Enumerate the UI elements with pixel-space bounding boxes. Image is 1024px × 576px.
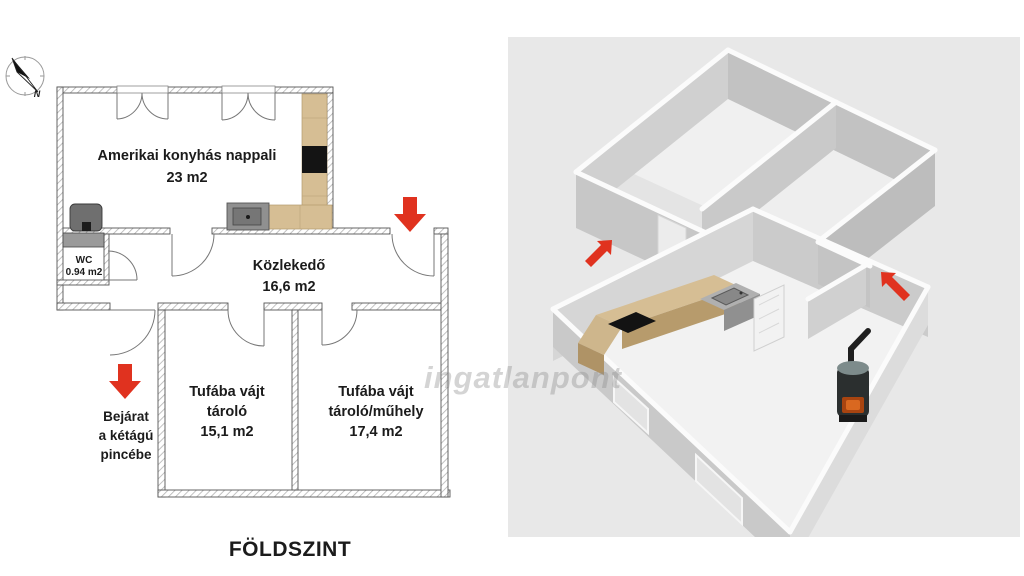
living-room-label: Amerikai konyhás nappali bbox=[98, 148, 277, 164]
storage1-area: 15,1 m2 bbox=[200, 424, 253, 440]
storage1-label-line1: Tufába vájt bbox=[189, 384, 265, 400]
kitchen-counter bbox=[268, 94, 332, 229]
wc-shelf bbox=[63, 233, 104, 247]
hallway-area: 16,6 m2 bbox=[262, 279, 315, 295]
kitchen-sink bbox=[227, 203, 269, 230]
cellar-arrow-icon bbox=[109, 364, 141, 399]
hallway-label: Közlekedő bbox=[253, 258, 326, 274]
compass-icon: N bbox=[6, 56, 44, 99]
floor-plan-2d: N bbox=[0, 0, 505, 576]
wc-area: 0.94 m2 bbox=[66, 267, 103, 278]
storage1-label-line2: tároló bbox=[207, 404, 247, 420]
cellar-note-line1: Bejárat bbox=[103, 409, 149, 424]
entrance-arrow-icon bbox=[394, 197, 426, 232]
cellar-note-line3: pincébe bbox=[100, 447, 152, 462]
wc-label: WC bbox=[76, 255, 93, 266]
compass-north-label: N bbox=[34, 89, 41, 99]
storage2-area: 17,4 m2 bbox=[349, 424, 402, 440]
storage2-label-line1: Tufába vájt bbox=[338, 384, 414, 400]
real-estate-floorplan-image: N bbox=[0, 0, 1024, 576]
floor-plan-3d bbox=[508, 37, 1020, 537]
floor-title: FÖLDSZINT bbox=[229, 538, 351, 561]
cooktop bbox=[302, 146, 327, 173]
storage2-label-line2: tároló/műhely bbox=[328, 404, 423, 420]
living-room-area: 23 m2 bbox=[166, 170, 207, 186]
stove bbox=[70, 204, 102, 231]
cellar-note-line2: a kétágú bbox=[99, 428, 154, 443]
